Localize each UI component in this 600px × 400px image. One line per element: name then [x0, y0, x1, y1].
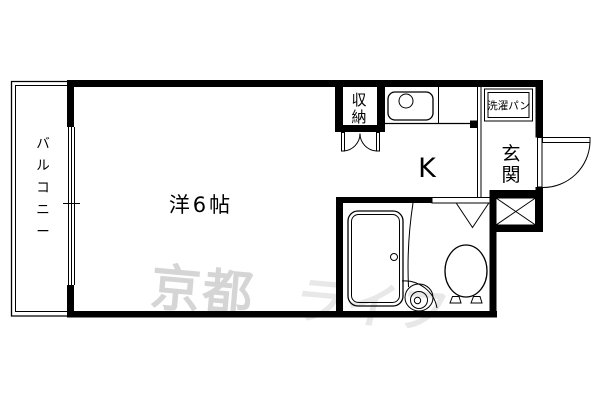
window: [63, 127, 80, 285]
kitchen-counter: [385, 87, 477, 124]
balcony-label: バルコニー: [36, 136, 50, 240]
bathtub-inner: [352, 215, 400, 303]
laundry-pan-label: 洗濯パン: [487, 100, 530, 112]
door-swing-arc: [543, 143, 590, 188]
balcony: [12, 82, 69, 317]
wash-basin-drain: [414, 297, 420, 303]
toilet: [445, 245, 487, 297]
wall-closet-bottom: [335, 125, 385, 132]
closet-door-left-swing: [344, 134, 361, 152]
wall-bottom: [67, 311, 497, 318]
toilet-foot: [471, 297, 482, 304]
wall-bath-top: [336, 197, 432, 203]
wall-shoebox-bottom: [496, 225, 543, 232]
wall-bath-right: [490, 190, 497, 318]
bath-partition-curve: [408, 203, 413, 287]
floor-plan-image: 京都ライフ: [0, 0, 600, 400]
wall-closet-left: [335, 80, 343, 132]
wash-basin-bowl: [411, 292, 428, 309]
wall-bath-left: [336, 197, 343, 317]
closet-door-right-swing: [360, 134, 377, 152]
closet-door-right-leaf: [377, 133, 380, 152]
entrance-door: [538, 138, 591, 188]
door-jamb: [538, 138, 543, 188]
wall-entrance-shoebox: [490, 190, 544, 198]
toilet-foot: [450, 297, 461, 304]
balcony-outer-line: [12, 82, 69, 317]
bathtub-drain: [391, 254, 398, 261]
bath-door-threshold: [432, 198, 490, 204]
wall-right-upper: [536, 80, 544, 138]
closet-door-left-leaf: [342, 133, 345, 152]
closet-doors: [342, 133, 380, 152]
closet-label: 収納: [351, 91, 366, 126]
wall-left-upper: [67, 80, 74, 127]
door-leaf: [543, 138, 591, 143]
entrance-step: [478, 87, 482, 197]
floor-plan-drawing: バルコニー 洋6帖 K 収納 玄関 洗濯パン: [0, 0, 600, 400]
shoe-box: [496, 198, 536, 225]
faucet-icon: [399, 94, 413, 108]
balcony-inner-line: [16, 86, 69, 312]
bathtub: [348, 211, 403, 306]
main-room-label: 洋6帖: [169, 193, 233, 217]
wall-closet-right: [377, 80, 385, 132]
bathroom: [348, 198, 490, 312]
entrance-label: 玄関: [501, 143, 520, 186]
wall-top: [68, 80, 543, 87]
bathroom-door: [457, 204, 489, 228]
kitchen-label: K: [418, 153, 437, 184]
wall-counter-endcap: [470, 121, 478, 129]
